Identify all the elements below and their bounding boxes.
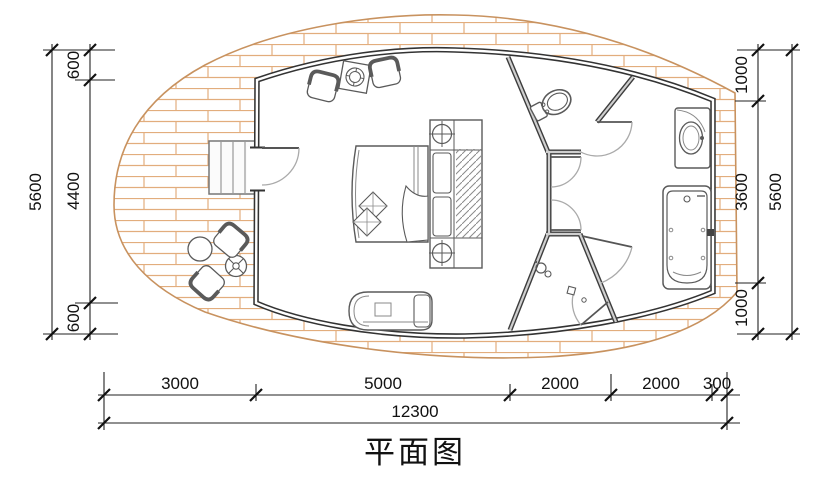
dim-bottom-5: 300 bbox=[703, 374, 731, 393]
coffee-table bbox=[339, 61, 371, 93]
wash-basin-vanity bbox=[675, 108, 710, 168]
bed-pillow bbox=[433, 197, 451, 236]
dim-left-1: 600 bbox=[64, 51, 83, 79]
floor-plan-canvas: 3000 5000 2000 2000 300 12300 600 4400 6… bbox=[0, 0, 837, 496]
armchair bbox=[369, 56, 402, 88]
page-title: 平面图 bbox=[364, 435, 466, 470]
bed-pillow bbox=[433, 153, 451, 193]
outdoor-round-table bbox=[188, 237, 212, 261]
dim-right-1: 1000 bbox=[732, 56, 751, 94]
dim-bottom-4: 2000 bbox=[642, 374, 680, 393]
double-bed bbox=[352, 146, 428, 242]
armchair bbox=[306, 70, 340, 103]
dim-left-2: 4400 bbox=[64, 172, 83, 210]
dim-bottom-1: 3000 bbox=[161, 374, 199, 393]
parasol-table bbox=[226, 256, 247, 277]
dim-right-2: 3600 bbox=[732, 173, 751, 211]
bathtub bbox=[663, 186, 714, 289]
dim-left-3: 600 bbox=[64, 304, 83, 332]
dim-right-overall: 5600 bbox=[766, 173, 785, 211]
wall-mount-fixture bbox=[707, 229, 714, 236]
floor-plan-drawing: 3000 5000 2000 2000 300 12300 600 4400 6… bbox=[0, 0, 837, 496]
dim-bottom-3: 2000 bbox=[541, 374, 579, 393]
dim-bottom-overall: 12300 bbox=[391, 402, 438, 421]
hanger-hatch bbox=[456, 149, 481, 238]
wardrobe-with-hangers bbox=[429, 120, 482, 268]
dim-right-3: 1000 bbox=[732, 289, 751, 327]
dim-bottom-2: 5000 bbox=[364, 374, 402, 393]
sofa-chaise bbox=[349, 292, 432, 330]
dim-left-overall: 5600 bbox=[26, 173, 45, 211]
